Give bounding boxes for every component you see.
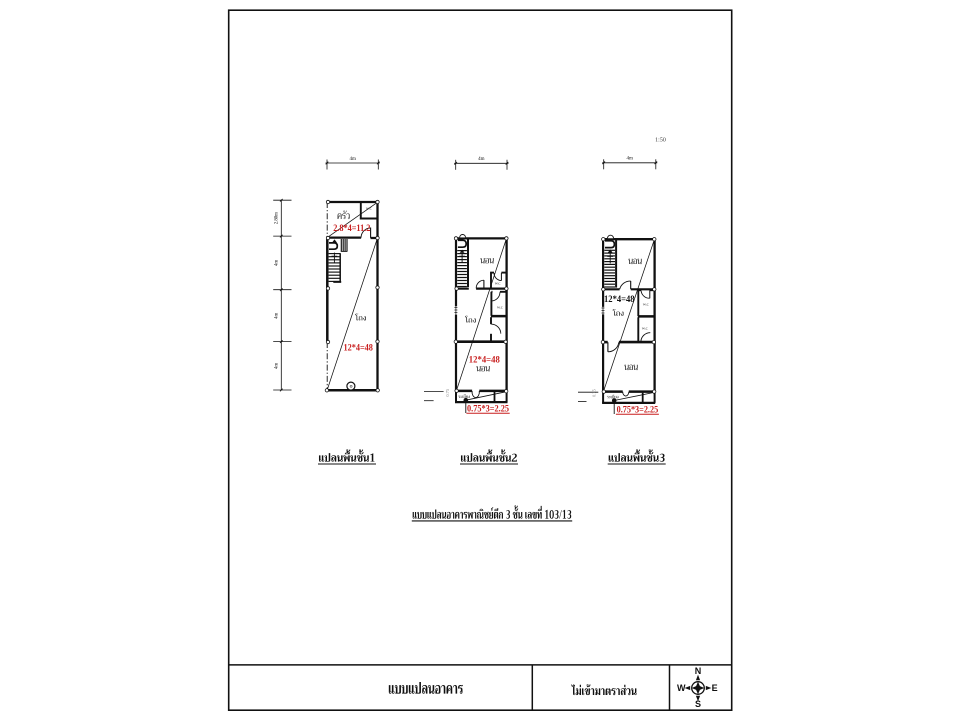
svg-text:0.75: 0.75 (445, 388, 450, 396)
svg-text:2.8*4=11.2: 2.8*4=11.2 (333, 223, 370, 234)
svg-text:12*4=48: 12*4=48 (604, 295, 635, 305)
svg-text:4m: 4m (627, 157, 634, 162)
svg-text:S: S (695, 699, 701, 709)
svg-text:12*4=48: 12*4=48 (469, 355, 500, 365)
svg-text:N: N (695, 666, 702, 676)
svg-text:W.C: W.C (643, 303, 650, 307)
svg-text:4m: 4m (478, 157, 485, 162)
svg-text:4m: 4m (349, 157, 356, 162)
svg-text:4m: 4m (275, 363, 280, 369)
svg-text:W.C: W.C (497, 306, 504, 310)
svg-text:0.75*3=2.25: 0.75*3=2.25 (467, 403, 509, 413)
svg-text:E: E (712, 683, 718, 693)
svg-text:4m: 4m (275, 312, 280, 318)
svg-text:1:50: 1:50 (655, 138, 666, 144)
svg-text:2.80m: 2.80m (275, 212, 280, 224)
svg-text:12*4=48: 12*4=48 (343, 343, 373, 353)
svg-text:W.C: W.C (642, 327, 649, 331)
svg-text:W.C: W.C (495, 281, 502, 285)
svg-text:4m: 4m (275, 260, 280, 266)
svg-text:0.75: 0.75 (591, 388, 596, 396)
svg-text:W.C: W.C (366, 206, 373, 210)
svg-text:W: W (677, 683, 686, 693)
svg-text:0.75*3=2.25: 0.75*3=2.25 (617, 404, 659, 414)
